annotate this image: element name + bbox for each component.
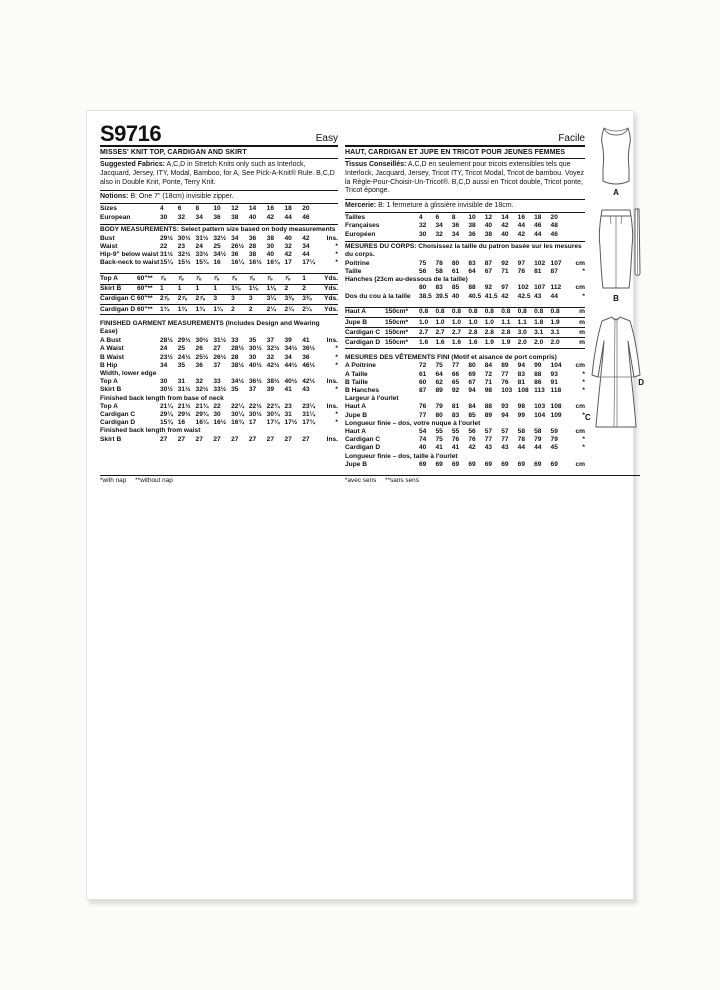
table-cell: 1	[302, 275, 320, 283]
table-cell: 43	[485, 444, 501, 452]
table-cell: 16¾	[267, 259, 285, 267]
table-cell: 98	[485, 387, 501, 395]
table-subhead: Finished back length from waist	[100, 427, 338, 435]
table-cell: 31½	[196, 235, 214, 243]
view-letter-d: D	[638, 378, 644, 387]
table-cell: 69	[468, 371, 484, 379]
skirt-b-sketch	[590, 207, 642, 293]
table-cell: 69	[534, 461, 550, 469]
table-cell: 30½	[249, 345, 267, 353]
unit-cell: *	[320, 419, 338, 427]
unit-cell: *	[320, 362, 338, 370]
table-cell: 42	[501, 293, 517, 301]
unit-cell: m	[567, 308, 585, 316]
table-cell: 0.8	[485, 308, 501, 316]
garment-illustrations: A B D	[592, 119, 640, 469]
table-row: Top A60"**⅞⅞⅞⅞⅞⅞⅞⅞1Yds.	[100, 273, 338, 284]
row-label: Bust	[100, 235, 160, 243]
table-cell: 3¼	[267, 295, 285, 303]
table-cell: 69	[452, 461, 468, 469]
table-cell: 34	[302, 243, 320, 251]
table-cell: 16	[267, 205, 285, 213]
table-cell: 40	[284, 235, 302, 243]
table-cell: 15½	[178, 259, 196, 267]
table-cell: 67	[485, 268, 501, 276]
notions-fr: Mercerie: B: 1 fermeture à glissière inv…	[345, 199, 585, 213]
view-letter-b: B	[613, 294, 619, 303]
unit-cell: *	[567, 436, 585, 444]
table-cell: 40	[249, 214, 267, 222]
table-cell: 77	[419, 412, 435, 420]
table-cell: 83	[435, 284, 451, 292]
table-section-header: MESURES DES VÊTEMENTS FINI (Motif et ais…	[345, 353, 585, 363]
table-cell: 27	[231, 436, 249, 444]
pattern-title-en: MISSES' KNIT TOP, CARDIGAN AND SKIRT	[100, 147, 338, 159]
row-fabric-width: 150cm*	[385, 339, 408, 347]
table-cell: 107	[551, 260, 567, 268]
table-cell: 1.8	[534, 319, 550, 327]
table-cell: 34½	[284, 345, 302, 353]
table-cell: 45	[551, 444, 567, 452]
table-cell: 34½	[231, 378, 249, 386]
table-cell: 54	[419, 428, 435, 436]
table-cell: 25½	[196, 354, 214, 362]
table-cell: 0.8	[551, 308, 567, 316]
finished-garment-table-en: FINISHED GARMENT MEASUREMENTS (Includes …	[100, 319, 338, 444]
table-cell: 42½	[267, 362, 285, 370]
table-section-header: FINISHED GARMENT MEASUREMENTS (Includes …	[100, 319, 338, 337]
unit-cell: cm	[567, 403, 585, 411]
unit-cell: Ins.	[320, 436, 338, 444]
table-cell: 15¾	[160, 419, 178, 427]
table-cell: 18	[534, 214, 550, 222]
table-cell: 2⅞	[178, 295, 196, 303]
table-cell: 41	[452, 444, 468, 452]
row-label: B Taille	[345, 379, 419, 387]
table-cell: 76	[501, 379, 517, 387]
table-cell: 2.0	[534, 339, 550, 347]
table-cell: 69	[551, 461, 567, 469]
table-cell: 2	[284, 285, 302, 293]
unit-cell: *	[320, 354, 338, 362]
table-cell: 86	[534, 379, 550, 387]
notions-text-fr: B: 1 fermeture à glissière invisible de …	[378, 202, 513, 209]
table-row: A Taille616466697277838893*	[345, 371, 585, 379]
table-cell: 26	[196, 345, 214, 353]
table-cell: 69	[435, 461, 451, 469]
table-cell: 22¾	[267, 403, 285, 411]
table-cell: 22¼	[231, 403, 249, 411]
table-cell: 32	[435, 231, 451, 239]
unit-cell: Ins.	[320, 378, 338, 386]
table-cell: 29½	[178, 337, 196, 345]
nap-footnote-en: *with nap **without nap	[100, 477, 338, 484]
table-cell: 76	[452, 436, 468, 444]
row-label: Cardigan D	[100, 419, 160, 427]
table-cell: 75	[419, 260, 435, 268]
table-cell: 0.8	[501, 308, 517, 316]
view-b-illustration: B	[592, 207, 640, 303]
table-cell: 109	[551, 412, 567, 420]
table-cell: 32½	[213, 235, 231, 243]
table-cell: 44	[551, 293, 567, 301]
table-cell: 61	[419, 371, 435, 379]
table-cell: 22	[160, 243, 178, 251]
table-cell: 38	[468, 222, 484, 230]
table-cell: 17	[284, 259, 302, 267]
table-cell: 92	[501, 260, 517, 268]
table-cell: 2.8	[468, 329, 484, 337]
table-cell: 10	[468, 214, 484, 222]
row-fabric-width: 150cm*	[385, 329, 408, 337]
row-fabric-width: 60"**	[137, 306, 153, 314]
body-measurements-table-fr: MESURES DU CORPS: Choisissez la taille d…	[345, 241, 585, 301]
table-cell: 16	[178, 419, 196, 427]
table-cell: 1	[178, 285, 196, 293]
table-cell: 32	[419, 222, 435, 230]
table-row: Françaises323436384042444648	[345, 222, 585, 230]
view-a-illustration: A	[592, 125, 640, 197]
table-cell: 61	[452, 268, 468, 276]
table-cell: 69	[518, 461, 534, 469]
table-cell: 1¾	[178, 306, 196, 314]
envelope-content: S9716 Easy MISSES' KNIT TOP, CARDIGAN AN…	[100, 119, 627, 484]
table-cell: 46	[302, 214, 320, 222]
table-cell: 40½	[284, 378, 302, 386]
table-cell: 88	[468, 284, 484, 292]
row-label: Taille	[345, 268, 419, 276]
table-cell: 59	[551, 428, 567, 436]
table-cell: 2¼	[284, 306, 302, 314]
table-row: Dos du cou à la taille38.539.54040.541.5…	[345, 293, 585, 301]
table-cell: 27	[249, 436, 267, 444]
table-cell: 2⅞	[196, 295, 214, 303]
table-cell: 27	[284, 436, 302, 444]
table-cell: 79	[551, 436, 567, 444]
table-row: Skirt B30½31½32½33½3537394143*	[100, 386, 338, 394]
table-row: Cardigan C60"**2⅞2⅞2⅞3333¼3⅜3⅜Yds.	[100, 295, 338, 305]
table-cell: 3⅜	[284, 295, 302, 303]
table-cell: 29½	[178, 411, 196, 419]
table-cell: 8	[452, 214, 468, 222]
table-cell: 17	[249, 419, 267, 427]
table-cell: 17¼	[302, 259, 320, 267]
table-cell: 87	[485, 260, 501, 268]
table-cell: 75	[435, 362, 451, 370]
notions-label-fr: Mercerie:	[345, 202, 376, 209]
unit-cell: m	[567, 339, 585, 347]
table-cell: 1.1	[501, 319, 517, 327]
table-cell: 15¾	[196, 259, 214, 267]
table-row: Cardigan C29¼29½29¾3030¼30½30¾3131¼*	[100, 411, 338, 419]
unit-cell: cm	[567, 260, 585, 268]
table-cell: 31½	[178, 386, 196, 394]
table-cell: 31½	[160, 251, 178, 259]
table-row: Jupe B696969696969696969cm	[345, 461, 585, 469]
table-cell: 41.5	[485, 293, 501, 301]
spacer	[592, 477, 640, 484]
table-cell: 44	[534, 444, 550, 452]
unit-cell: *	[567, 293, 585, 301]
cardigan-cd-sketch	[588, 313, 644, 431]
table-cell: 42	[501, 222, 517, 230]
table-cell: 55	[435, 428, 451, 436]
table-cell: 42	[267, 214, 285, 222]
row-label: Dos du cou à la taille	[345, 293, 419, 301]
table-cell: 16	[518, 214, 534, 222]
table-cell: 1¾	[160, 306, 178, 314]
table-cell: 112	[551, 284, 567, 292]
row-label: Back-neck to waist	[100, 259, 160, 267]
body-measurements-table-en: BODY MEASUREMENTS: Select pattern size b…	[100, 224, 338, 268]
table-cell: 57	[485, 428, 501, 436]
table-cell: 79	[534, 436, 550, 444]
unit-cell: *	[320, 386, 338, 394]
table-cell: 14	[501, 214, 517, 222]
table-cell: 10	[213, 205, 231, 213]
table-cell: 42	[284, 251, 302, 259]
view-cd-illustration: D C	[592, 313, 640, 431]
table-cell: 97	[501, 284, 517, 292]
unit-cell: cm	[567, 284, 585, 292]
table-cell: 98	[518, 403, 534, 411]
table-cell: 24	[196, 243, 214, 251]
table-cell: 40	[267, 251, 285, 259]
table-cell: 40½	[249, 362, 267, 370]
table-cell: 28	[231, 354, 249, 362]
table-cell: 113	[534, 387, 550, 395]
table-cell: 24	[160, 345, 178, 353]
table-cell: 64	[468, 268, 484, 276]
table-cell: 1.9	[485, 339, 501, 347]
table-cell: 23½	[160, 354, 178, 362]
unit-cell: *	[320, 243, 338, 251]
table-row: Cardigan D404141424343444445*	[345, 444, 585, 452]
table-cell: 104	[551, 362, 567, 370]
table-cell: 85	[452, 284, 468, 292]
row-label: A Taille	[345, 371, 419, 379]
row-label: Cardigan C	[345, 436, 419, 444]
table-cell: 38½	[231, 362, 249, 370]
table-cell: 17¾	[302, 419, 320, 427]
table-cell: 79	[435, 403, 451, 411]
table-cell: 57	[501, 428, 517, 436]
table-cell: 99	[518, 412, 534, 420]
row-label: Haut A150cm*	[345, 308, 419, 316]
table-cell: 23	[284, 403, 302, 411]
table-cell: 1.0	[468, 319, 484, 327]
table-cell: 16½	[249, 259, 267, 267]
pattern-envelope-back: S9716 Easy MISSES' KNIT TOP, CARDIGAN AN…	[86, 110, 634, 900]
table-cell: 2.0	[518, 339, 534, 347]
table-cell: 64	[435, 371, 451, 379]
table-cell: 37	[249, 386, 267, 394]
table-cell: 3.1	[534, 329, 550, 337]
table-cell: 31½	[213, 337, 231, 345]
french-header: Facile	[345, 119, 585, 147]
table-cell: 58	[534, 428, 550, 436]
unit-cell: *	[320, 411, 338, 419]
table-subhead: Longueur finie – dos, taille à l'ourlet	[345, 453, 585, 461]
table-cell: 32½	[178, 251, 196, 259]
table-cell: 34	[196, 214, 214, 222]
table-cell: 6	[178, 205, 196, 213]
suggested-fabrics-en: Suggested Fabrics: A,C,D in Stretch Knit…	[100, 161, 338, 187]
table-cell: 36	[213, 214, 231, 222]
table-cell: 30½	[249, 411, 267, 419]
table-cell: 99	[534, 362, 550, 370]
unit-cell: *	[567, 268, 585, 276]
table-row: Jupe B150cm*1.01.01.01.01.01.11.11.81.9m	[345, 318, 585, 328]
table-cell: 27	[213, 436, 231, 444]
table-cell: 3	[213, 295, 231, 303]
yardage-table-en: Top A60"**⅞⅞⅞⅞⅞⅞⅞⅞1Yds.Skirt B60"**11111…	[100, 273, 338, 315]
table-cell: 23	[178, 243, 196, 251]
table-cell: 27	[160, 436, 178, 444]
table-row: Cardigan D15¾1616¼16½16¾1717¼17½17¾*	[100, 419, 338, 427]
table-row: Skirt B60"**11111⅛1⅛1⅛22Yds.	[100, 285, 338, 295]
table-cell: 36	[302, 354, 320, 362]
table-cell: 41	[284, 386, 302, 394]
table-cell: 1¾	[213, 306, 231, 314]
table-cell: 83	[468, 260, 484, 268]
table-cell: 42	[468, 444, 484, 452]
table-cell: 0.8	[534, 308, 550, 316]
table-cell: 22	[213, 403, 231, 411]
top-a-sketch	[594, 125, 638, 187]
pattern-title-fr: HAUT, CARDIGAN ET JUPE EN TRICOT POUR JE…	[345, 147, 585, 159]
table-cell: 84	[468, 403, 484, 411]
table-cell: 40	[485, 222, 501, 230]
table-cell: ⅞	[160, 275, 178, 283]
table-cell: 23¼	[302, 403, 320, 411]
table-cell: ⅞	[178, 275, 196, 283]
table-cell: 2¼	[302, 306, 320, 314]
table-cell: 27	[178, 436, 196, 444]
table-cell: 21½	[178, 403, 196, 411]
table-cell: 107	[534, 284, 550, 292]
table-cell: 43	[501, 444, 517, 452]
suggested-fabrics-fr: Tissus Conseillés: A,C,D en seulement po…	[345, 161, 585, 196]
table-cell: 29¼	[160, 411, 178, 419]
table-subhead: Width, lower edge	[100, 370, 338, 378]
row-label: Européen	[345, 231, 419, 239]
table-row: A Poitrine7275778084899499104cm	[345, 362, 585, 370]
table-cell: 30	[160, 214, 178, 222]
table-subhead: Finished back length from base of neck	[100, 395, 338, 403]
row-fabric-width: 60"**	[137, 285, 153, 293]
table-cell: 81	[452, 403, 468, 411]
table-cell: 39.5	[435, 293, 451, 301]
table-cell: 12	[485, 214, 501, 222]
table-cell: 4	[419, 214, 435, 222]
table-subhead: Longueur finie – dos, votre nuque à l'ou…	[345, 420, 585, 428]
table-cell: 35	[178, 362, 196, 370]
table-row: B Taille606265677176818691*	[345, 379, 585, 387]
table-cell: 34	[231, 235, 249, 243]
table-cell: 83	[452, 412, 468, 420]
table-cell: 38.5	[419, 293, 435, 301]
table-cell: 2.8	[485, 329, 501, 337]
table-cell: 56	[419, 268, 435, 276]
table-row: B Hanches8789929498103108113118*	[345, 387, 585, 395]
table-cell: 75	[435, 436, 451, 444]
table-cell: 77	[485, 436, 501, 444]
table-cell: 36½	[302, 345, 320, 353]
table-row: A Waist2425262728½30½32½34½36½*	[100, 345, 338, 353]
row-label: European	[100, 214, 160, 222]
table-cell: 87	[419, 387, 435, 395]
table-cell: 72	[485, 371, 501, 379]
table-cell: 84	[485, 362, 501, 370]
table-cell: 38½	[267, 378, 285, 386]
table-cell: ⅞	[213, 275, 231, 283]
unit-cell: *	[567, 444, 585, 452]
table-cell: 42	[518, 231, 534, 239]
table-cell: 44	[518, 222, 534, 230]
table-cell: ⅞	[196, 275, 214, 283]
table-cell: 1.9	[551, 319, 567, 327]
row-label: Skirt B	[100, 386, 160, 394]
table-row: Cardigan D150cm*1.61.61.61.61.91.92.02.0…	[345, 338, 585, 348]
table-cell: 30½	[160, 386, 178, 394]
finished-garment-table-fr: MESURES DES VÊTEMENTS FINI (Motif et ais…	[345, 353, 585, 469]
table-cell: 35	[231, 386, 249, 394]
table-cell: 108	[518, 387, 534, 395]
row-label: Sizes	[100, 205, 160, 213]
table-cell: 3.0	[518, 329, 534, 337]
table-cell: 102	[534, 260, 550, 268]
unit-cell: *	[320, 251, 338, 259]
row-fabric-width: 60"**	[137, 275, 153, 283]
row-fabric-width: 150cm*	[385, 319, 408, 327]
table-cell: 56	[468, 428, 484, 436]
table-cell: 29½	[160, 235, 178, 243]
table-cell: 34	[160, 362, 178, 370]
table-cell: 97	[518, 260, 534, 268]
table-cell: 28½	[231, 345, 249, 353]
table-cell: ⅞	[231, 275, 249, 283]
table-cell: 1.0	[419, 319, 435, 327]
table-row: Waist2223242526½28303234*	[100, 243, 338, 251]
view-letter-a: A	[613, 188, 619, 197]
row-label: Poitrine	[345, 260, 419, 268]
table-cell: 71	[501, 268, 517, 276]
table-cell: 1⅛	[249, 285, 267, 293]
table-cell: 88	[534, 371, 550, 379]
unit-cell: Yds.	[320, 285, 338, 293]
row-fabric-width: 60"**	[137, 295, 153, 303]
table-cell: 1	[196, 285, 214, 293]
table-cell: 69	[485, 461, 501, 469]
table-cell: 69	[501, 461, 517, 469]
unit-cell: *	[567, 387, 585, 395]
difficulty-label-en: Easy	[316, 133, 338, 145]
table-cell: 43	[302, 386, 320, 394]
table-cell: 27	[302, 436, 320, 444]
table-cell: 8	[196, 205, 214, 213]
table-row: Skirt B272727272727272727Ins.	[100, 436, 338, 444]
table-cell: 1.0	[452, 319, 468, 327]
table-cell: 46	[534, 222, 550, 230]
row-label: Cardigan D	[345, 444, 419, 452]
row-label: B Waist	[100, 354, 160, 362]
table-row: Taille565861646771768187*	[345, 268, 585, 276]
table-cell: 30	[419, 231, 435, 239]
table-cell: 34	[435, 222, 451, 230]
table-cell: 20	[551, 214, 567, 222]
table-cell: 21¾	[196, 403, 214, 411]
